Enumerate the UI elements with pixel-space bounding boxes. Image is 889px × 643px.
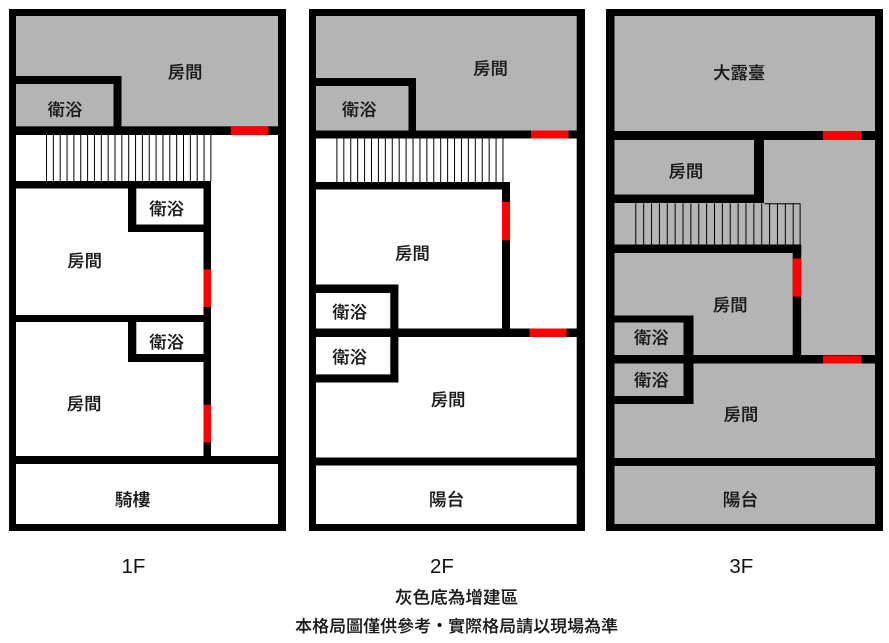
svg-text:1F: 1F [122, 555, 146, 578]
svg-text:2F: 2F [430, 555, 454, 578]
svg-text:3F: 3F [729, 555, 753, 578]
